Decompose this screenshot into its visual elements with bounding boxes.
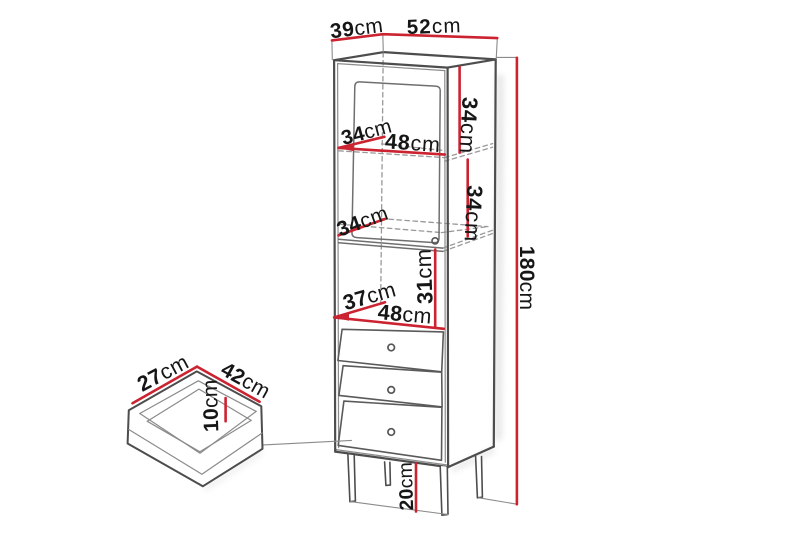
svg-text:48cm: 48cm <box>377 300 433 329</box>
svg-text:10cm: 10cm <box>199 379 224 432</box>
svg-text:34cm: 34cm <box>455 96 483 154</box>
svg-text:52cm: 52cm <box>406 14 462 39</box>
svg-text:34cm: 34cm <box>460 185 488 243</box>
svg-text:31cm: 31cm <box>411 248 438 304</box>
svg-text:180cm: 180cm <box>515 246 538 311</box>
svg-text:20cm: 20cm <box>395 462 419 511</box>
svg-text:48cm: 48cm <box>384 129 441 157</box>
